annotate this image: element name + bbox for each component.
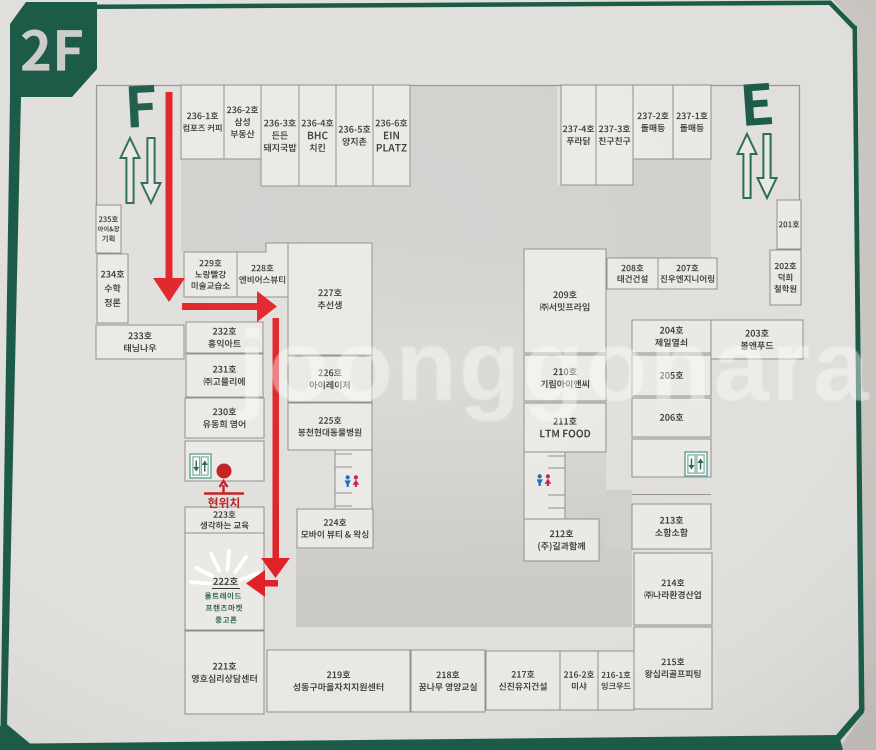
svg-text:joonggonara: joonggonara [236,310,871,422]
